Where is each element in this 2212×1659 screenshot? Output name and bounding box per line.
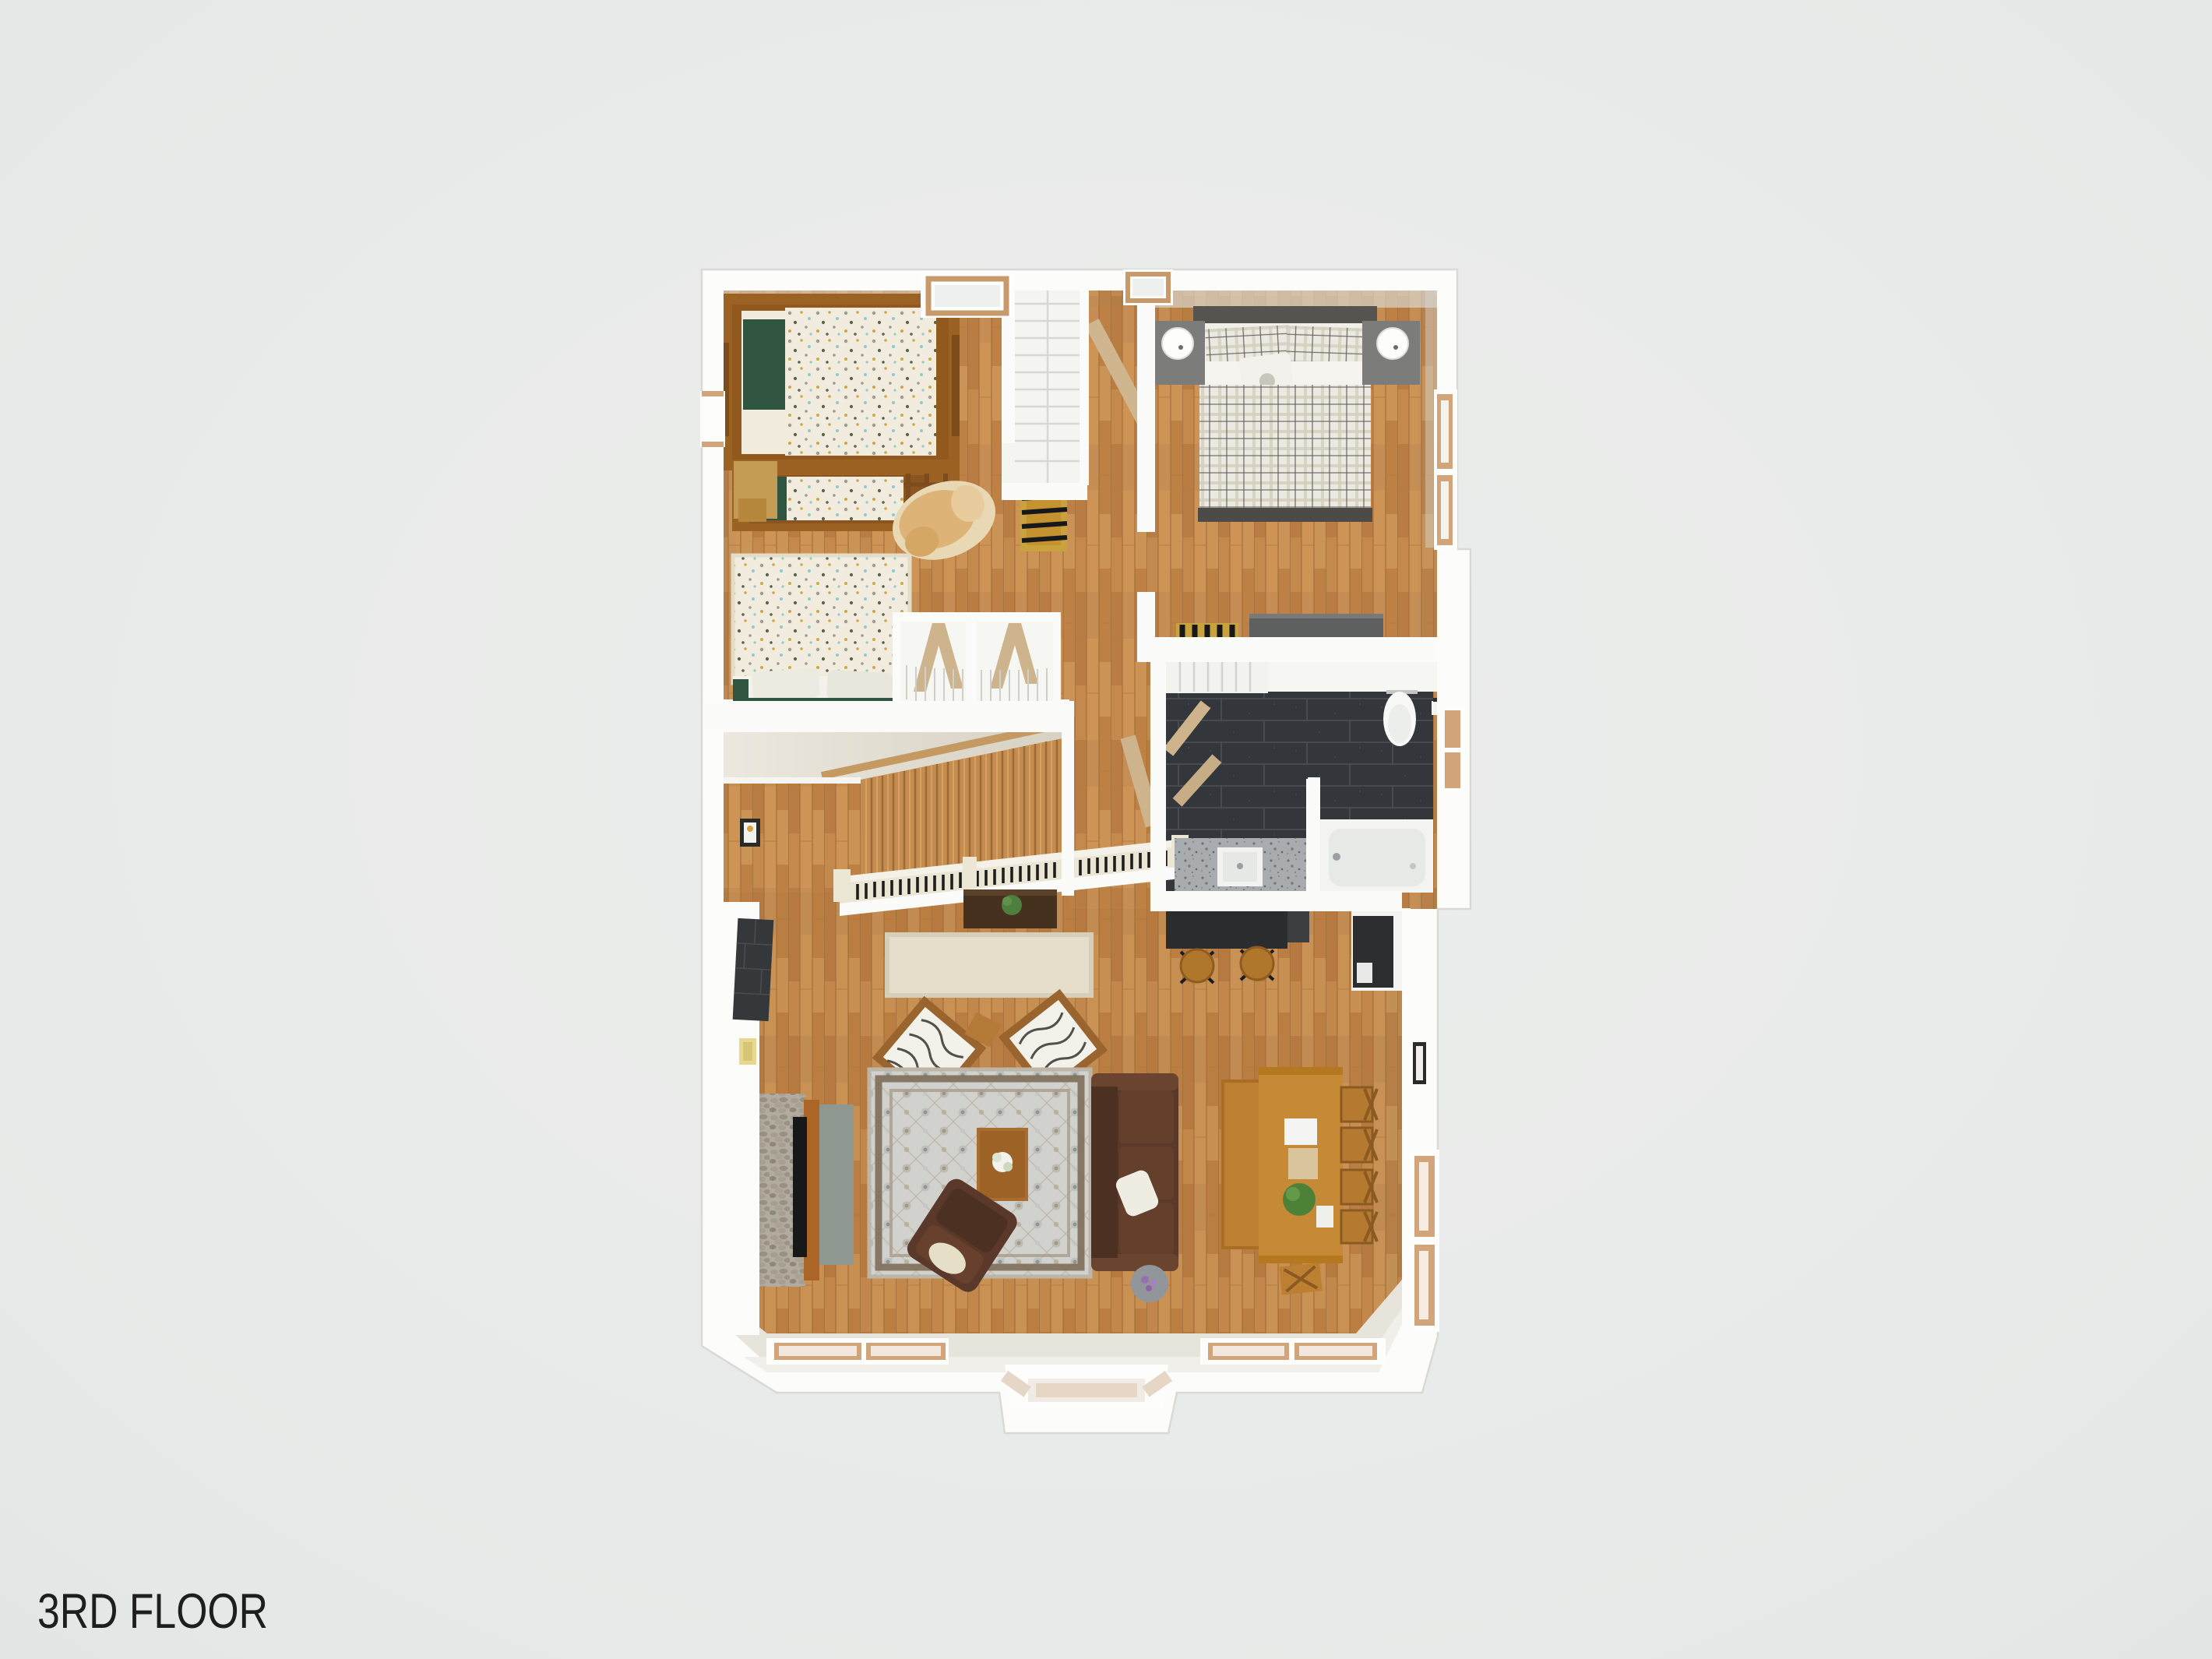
svg-text:3RD FLOOR: 3RD FLOOR: [37, 1584, 268, 1639]
